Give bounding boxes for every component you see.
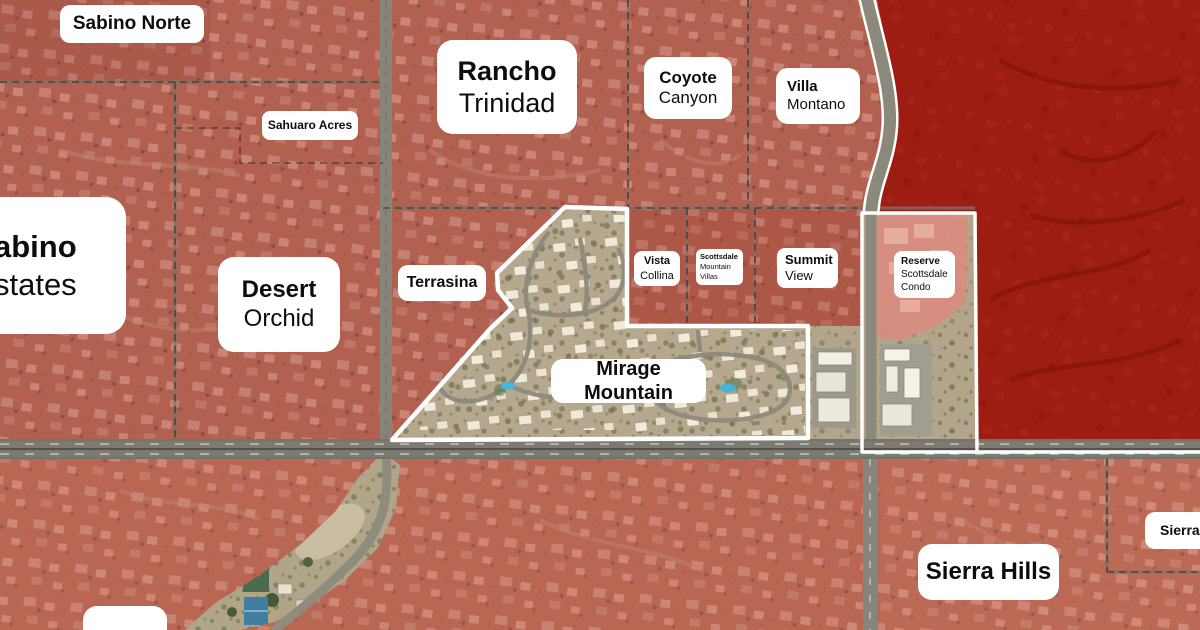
label-text: Scottsdale bbox=[700, 252, 738, 262]
label-villa-montano: Villa Montano bbox=[776, 68, 860, 124]
label-text: Estates bbox=[0, 266, 77, 303]
label-text: View bbox=[785, 268, 813, 284]
label-reserve-scottsdale-condo: Reserve Scottsdale Condo bbox=[894, 251, 955, 298]
aerial-map bbox=[0, 0, 1200, 630]
label-text: Orchid bbox=[244, 305, 315, 334]
label-text: Mountain bbox=[700, 262, 731, 272]
label-terrasina: Terrasina bbox=[398, 265, 486, 301]
label-text: Coyote bbox=[659, 68, 717, 88]
label-text: Reserve bbox=[901, 255, 940, 268]
label-text: Condo bbox=[901, 281, 930, 294]
label-text: Sierra Norte bbox=[1160, 522, 1200, 539]
label-text: Villa bbox=[787, 78, 818, 96]
label-text: Sierra Hills bbox=[926, 558, 1051, 587]
label-text: Mirage Mountain bbox=[551, 357, 706, 405]
label-coyote-canyon: Coyote Canyon bbox=[644, 57, 732, 119]
map-canvas: Sabino Norte Sahuaro Acres Rancho Trinid… bbox=[0, 0, 1200, 630]
label-text: Sahuaro Acres bbox=[268, 118, 352, 132]
label-text: Villas bbox=[700, 272, 718, 282]
label-desert-orchid: Desert Orchid bbox=[218, 257, 340, 352]
label-text: Rancho bbox=[457, 55, 556, 87]
label-partial-bottom-left bbox=[83, 606, 167, 630]
label-vista-collina: Vista Collina bbox=[634, 251, 680, 286]
label-rancho-trinidad: Rancho Trinidad bbox=[437, 40, 577, 134]
label-sierra-norte: Sierra Norte bbox=[1145, 512, 1200, 549]
label-sabino-norte: Sabino Norte bbox=[60, 5, 204, 43]
label-text: Summit bbox=[785, 252, 833, 268]
label-text: Terrasina bbox=[407, 273, 478, 292]
label-sahuaro-acres: Sahuaro Acres bbox=[262, 111, 358, 140]
label-text: Trinidad bbox=[459, 87, 556, 119]
label-mirage-mountain: Mirage Mountain bbox=[551, 359, 706, 403]
label-summit-view: Summit View bbox=[777, 248, 838, 288]
label-sierra-hills: Sierra Hills bbox=[918, 544, 1059, 600]
label-text: Canyon bbox=[659, 88, 718, 108]
label-text: Collina bbox=[640, 269, 674, 283]
label-text: Sabino Norte bbox=[73, 13, 191, 36]
label-text: Scottsdale bbox=[901, 268, 948, 281]
label-scottsdale-mountain-villas: Scottsdale Mountain Villas bbox=[696, 249, 743, 285]
label-text: Desert bbox=[242, 276, 317, 305]
label-text: Sabino bbox=[0, 228, 77, 265]
label-text: Montano bbox=[787, 96, 845, 114]
label-text: Vista bbox=[644, 254, 670, 268]
label-sabino-estates: Sabino Estates bbox=[0, 197, 126, 334]
